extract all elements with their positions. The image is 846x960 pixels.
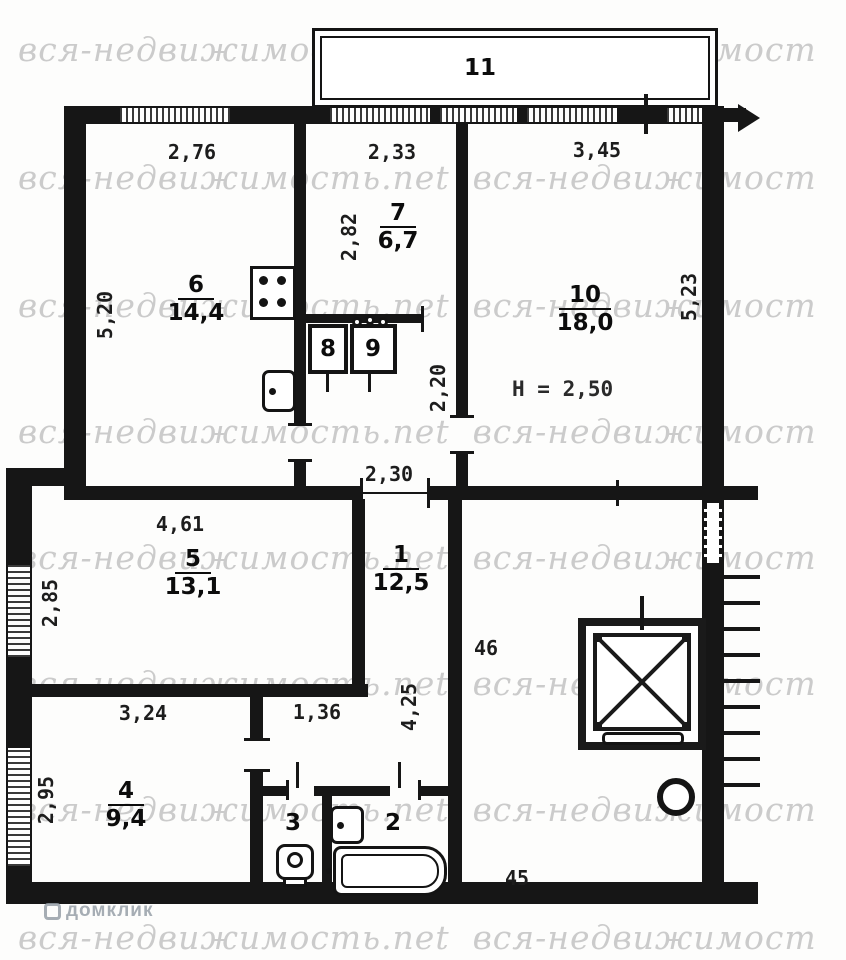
- wall-hall-upper: [456, 124, 468, 416]
- window-top-1: [120, 108, 230, 122]
- toilet-base-icon: [283, 877, 307, 887]
- room-3-number: 3: [278, 810, 308, 836]
- dim-46: 46: [466, 636, 506, 660]
- toilet-drain-icon: [287, 852, 303, 868]
- room-5-number: 5: [175, 546, 211, 574]
- bathtub-tap-icon: [326, 868, 332, 874]
- room-6-number: 6: [178, 272, 214, 300]
- stair-tread: [722, 679, 760, 683]
- wall-hall1-right: [448, 499, 462, 882]
- wall-wc-top-2: [314, 786, 390, 796]
- wall-tick-mid: [616, 480, 619, 506]
- room-10-area: 18,0: [540, 310, 630, 337]
- room-1-area: 12,5: [360, 570, 442, 597]
- stove-burner-icon: [277, 298, 286, 307]
- door-jamb-room7: [421, 306, 424, 332]
- brand-watermark: домклик: [44, 900, 153, 922]
- dim-2-20: 2,20: [426, 353, 450, 423]
- elevator-tick: [640, 596, 644, 630]
- room-10-number: 10: [559, 282, 611, 310]
- door-jamb-kitchen-2: [288, 459, 312, 462]
- room-4-label: 4 9,4: [88, 778, 164, 833]
- wall-right-dashed-section: [704, 503, 722, 563]
- room-10-ceiling-height: Н = 2,50: [512, 377, 662, 401]
- wall-hall1-left: [352, 499, 365, 697]
- stove-burner-icon: [277, 276, 286, 285]
- wall-tick: [644, 94, 648, 134]
- dim-2-95: 2,95: [34, 765, 58, 835]
- bath-sink-drain-icon: [337, 822, 344, 829]
- watermark-row: вся-недвижимость.net вся-недвижимост: [18, 412, 817, 451]
- watermark-text: вся-недвижимост: [473, 538, 817, 577]
- room-7-area: 6,7: [358, 228, 438, 255]
- kitchen-sink-icon: [262, 370, 296, 412]
- wall-left-upper: [64, 106, 86, 488]
- watermark-text: вся-недвижимост: [473, 790, 817, 829]
- window-left-room4: [8, 748, 30, 866]
- wall-room5-bottom: [28, 684, 368, 697]
- room-1-number: 1: [383, 542, 419, 570]
- door-leaf-bath2: [398, 762, 401, 788]
- dim-5-20: 5,20: [93, 280, 117, 350]
- brand-logo-icon: [44, 903, 61, 920]
- dim-3-45: 3,45: [562, 138, 632, 162]
- dim-2-33: 2,33: [357, 140, 427, 164]
- closet-8-tick: [326, 374, 329, 392]
- door-jamb-room10-2: [450, 451, 474, 454]
- balcony-inner-line: [320, 36, 710, 100]
- window-top-4: [527, 108, 617, 122]
- dim-5-23: 5,23: [677, 262, 701, 332]
- door-opening-line: [362, 492, 428, 494]
- room-2-number: 2: [378, 810, 408, 836]
- dim-2-76: 2,76: [157, 140, 227, 164]
- garbage-chute-icon: [657, 778, 695, 816]
- elevator-x-icon: [592, 632, 692, 732]
- dim-3-24: 3,24: [108, 701, 178, 725]
- vent-circle-icon: [352, 317, 362, 327]
- dim-2-85: 2,85: [38, 568, 62, 638]
- stair-tread: [722, 705, 760, 709]
- wall-mid-left: [64, 486, 362, 500]
- bath-sink-icon: [330, 806, 364, 844]
- room-6-label: 6 14,4: [156, 272, 236, 327]
- room-7-label: 7 6,7: [358, 200, 438, 255]
- room-6-area: 14,4: [156, 300, 236, 327]
- wall-room4-right-upper: [250, 697, 263, 740]
- door-jamb-room4-2: [244, 769, 270, 772]
- room-5-area: 13,1: [152, 574, 234, 601]
- dim-1-36: 1,36: [282, 700, 352, 724]
- room-8-number: 8: [313, 336, 343, 362]
- wall-wc-top-1: [262, 786, 288, 796]
- kitchen-sink-drain-icon: [269, 388, 276, 395]
- wall-wc-top-3: [420, 786, 458, 796]
- window-top-3: [440, 108, 517, 122]
- wall-kitchen-lower: [294, 462, 306, 488]
- stair-tread: [722, 627, 760, 631]
- stair-tread: [722, 783, 760, 787]
- room-10-label: 10 18,0: [540, 282, 630, 337]
- door-jamb-kitchen-1: [288, 423, 312, 426]
- watermark-text: вся-недвижимост: [473, 158, 817, 197]
- stove-burner-icon: [259, 298, 268, 307]
- stove-burner-icon: [259, 276, 268, 285]
- door-jamb-room4-1: [244, 738, 270, 741]
- floor-plan: вся-недвижимость.net вся-недвижимост вся…: [0, 0, 846, 960]
- dim-4-61: 4,61: [145, 512, 215, 536]
- room-5-label: 5 13,1: [152, 546, 234, 601]
- watermark-text: вся-недвижимост: [473, 412, 817, 451]
- bathtub-inner-line: [341, 854, 439, 888]
- watermark-text: вся-недвижимость.net: [18, 918, 450, 957]
- dim-2-30: 2,30: [354, 462, 424, 486]
- stair-tread: [722, 575, 760, 579]
- elevator-door-bar: [602, 732, 684, 745]
- direction-arrow-icon: [738, 100, 768, 136]
- watermark-text: вся-недвижимост: [473, 918, 817, 957]
- stair-tread: [722, 757, 760, 761]
- room-11-number: 11: [455, 55, 505, 81]
- watermark-row: вся-недвижимость.net вся-недвижимост: [18, 918, 817, 957]
- stair-tread: [722, 731, 760, 735]
- door-jamb-room10-1: [450, 415, 474, 418]
- room-7-number: 7: [380, 200, 416, 228]
- door-jamb-bath2: [418, 780, 421, 800]
- dim-2-82: 2,82: [337, 202, 361, 272]
- door-jamb-wc3: [286, 780, 289, 800]
- stair-tread: [722, 601, 760, 605]
- door-leaf-wc3: [296, 762, 299, 788]
- room-4-number: 4: [108, 778, 144, 806]
- wall-hall-lower: [456, 454, 468, 488]
- stove-icon: [250, 266, 296, 320]
- vent-circle-icon: [365, 315, 375, 325]
- closet-9-tick: [368, 374, 371, 392]
- vent-circle-icon: [378, 317, 388, 327]
- door-jamb-mid-2: [427, 478, 430, 508]
- watermark-text: вся-недвижимост: [473, 286, 817, 325]
- window-top-2: [330, 108, 430, 122]
- dim-45: 45: [497, 866, 537, 890]
- brand-name: домклик: [66, 900, 153, 922]
- dim-4-25: 4,25: [397, 672, 421, 742]
- room-9-number: 9: [357, 336, 389, 362]
- window-left-room5: [8, 565, 30, 657]
- stair-tread: [722, 653, 760, 657]
- room-1-label: 1 12,5: [360, 542, 442, 597]
- wall-mid-right: [428, 486, 758, 500]
- room-4-area: 9,4: [88, 806, 164, 833]
